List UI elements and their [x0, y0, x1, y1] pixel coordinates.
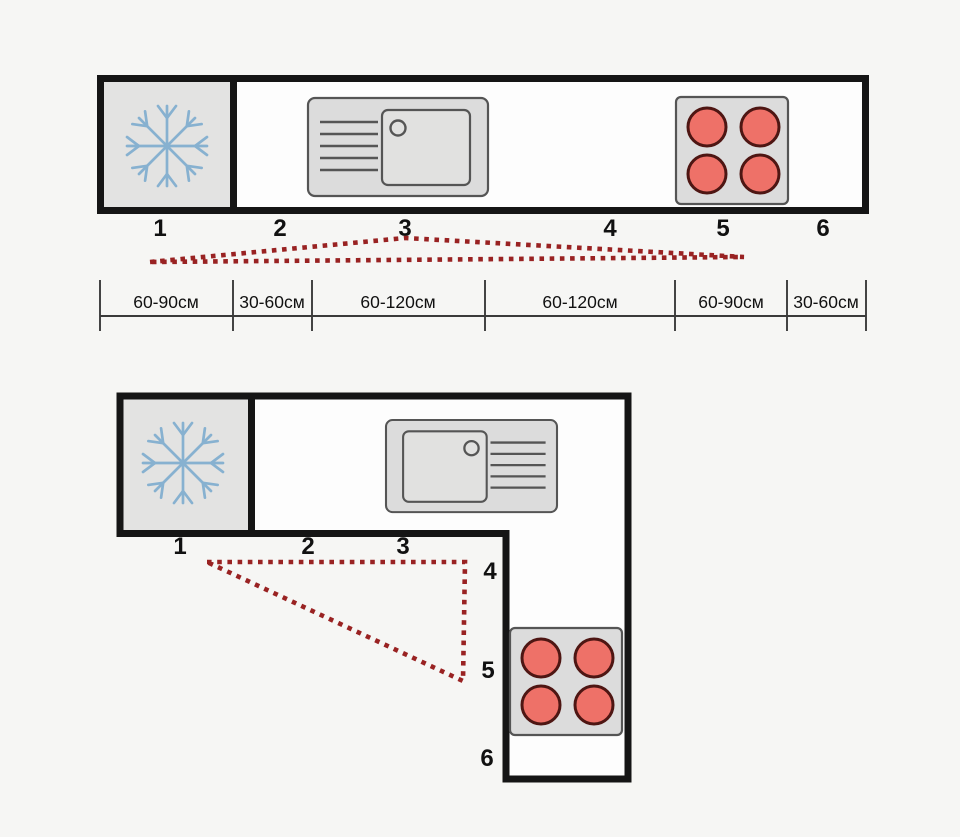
- zone-number: 4: [483, 558, 497, 585]
- dimension-label: 30-60см: [239, 292, 305, 312]
- work-triangle: [207, 562, 465, 681]
- zone-number: 5: [481, 657, 494, 684]
- zone-number: 3: [396, 533, 409, 560]
- dimension-label: 60-90см: [133, 292, 199, 312]
- diagram-canvas: 1 2 3 4 5 6 60-90см 30-60см 60-120см: [0, 0, 960, 837]
- linear-kitchen-layout: 1 2 3 4 5 6 60-90см 30-60см 60-120см: [100, 76, 866, 331]
- dimension-label: 60-120см: [542, 292, 617, 312]
- work-triangle: [150, 238, 744, 262]
- zone-numbers: 1 2 3 4 5 6: [153, 215, 829, 242]
- zone-number: 2: [301, 533, 314, 560]
- dimension-label: 60-90см: [698, 292, 764, 312]
- zone-number: 5: [716, 215, 729, 242]
- snowflake-icon: [143, 423, 223, 503]
- four-burner-hob-icon: [510, 628, 622, 735]
- four-burner-hob-icon: [676, 97, 788, 204]
- sink-with-drainboard-icon: [386, 420, 557, 512]
- sink-with-drainboard-icon: [308, 98, 488, 196]
- zone-number: 2: [273, 215, 286, 242]
- zone-number: 6: [816, 215, 829, 242]
- dimension-label: 30-60см: [793, 292, 859, 312]
- zone-number: 6: [480, 745, 493, 772]
- dimension-label: 60-120см: [360, 292, 435, 312]
- zone-number: 1: [153, 215, 166, 242]
- snowflake-icon: [127, 106, 207, 186]
- kitchen-planning-diagram: 1 2 3 4 5 6 60-90см 30-60см 60-120см: [0, 0, 960, 837]
- l-shaped-kitchen-layout: 1 2 3 4 5 6: [120, 394, 628, 779]
- zone-number: 1: [173, 533, 186, 560]
- dimension-scale: 60-90см 30-60см 60-120см 60-120см 60-90с…: [100, 280, 866, 331]
- zone-number: 4: [603, 215, 617, 242]
